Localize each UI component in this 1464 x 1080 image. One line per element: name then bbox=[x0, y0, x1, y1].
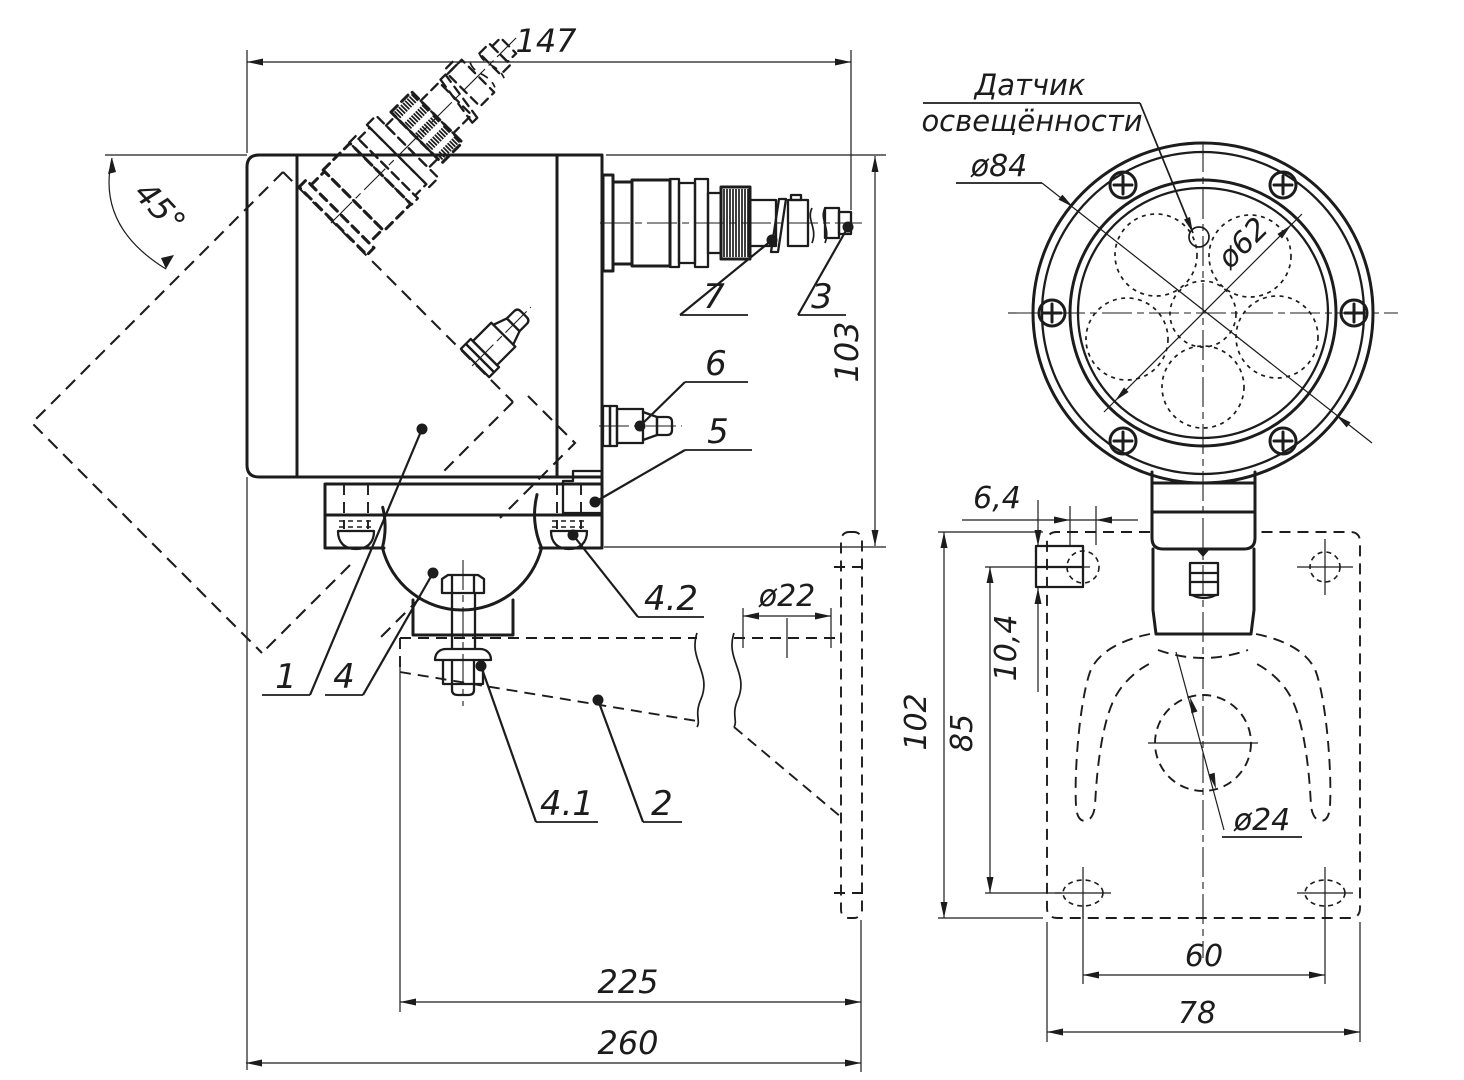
callout-text-7: 7 bbox=[703, 277, 725, 317]
callout-4-2: 4.2 bbox=[568, 530, 705, 620]
dim-text-103: 103 bbox=[828, 321, 866, 382]
callout-text-1: 1 bbox=[275, 657, 297, 697]
callout-text-3: 3 bbox=[811, 277, 833, 317]
dim-text-10-4: 10,4 bbox=[989, 615, 1024, 682]
dim-text-260: 260 bbox=[597, 1024, 658, 1062]
dim-147: 147 bbox=[247, 22, 851, 1070]
callout-text-4: 4 bbox=[333, 657, 355, 697]
callout-text-5: 5 bbox=[707, 412, 729, 452]
dim-text-78: 78 bbox=[1178, 996, 1216, 1031]
ghost-rotated-housing bbox=[32, 4, 575, 653]
dim-10-4: 10,4 bbox=[989, 500, 1042, 692]
dim-text-147: 147 bbox=[515, 22, 577, 60]
dim-text-o22: ø22 bbox=[758, 579, 816, 614]
callout-text-4-2: 4.2 bbox=[644, 579, 698, 619]
callout-text-2: 2 bbox=[651, 784, 673, 824]
dim-text-o84: ø84 bbox=[970, 149, 1028, 184]
dim-text-85: 85 bbox=[945, 714, 980, 752]
rotated-valve bbox=[458, 293, 545, 380]
dim-o24: ø24 bbox=[1176, 652, 1302, 838]
sensor-label-line2: освещённости bbox=[921, 104, 1142, 138]
callout-text-6: 6 bbox=[705, 344, 727, 384]
sensor-label-line1: Датчик bbox=[973, 68, 1086, 102]
dim-text-45: 45° bbox=[127, 174, 193, 241]
dim-o22: ø22 bbox=[743, 579, 831, 658]
lamp-housing-body bbox=[247, 155, 602, 513]
mounting-plate-dashed bbox=[1036, 532, 1360, 919]
dim-225: 225 bbox=[400, 660, 861, 1072]
callout-4-1: 4.1 bbox=[476, 661, 599, 825]
dim-text-225: 225 bbox=[597, 963, 658, 1001]
dim-text-102: 102 bbox=[899, 693, 934, 750]
callout-1: 1 bbox=[262, 424, 428, 698]
dim-260: 260 bbox=[246, 1024, 861, 1067]
technical-drawing-canvas: 147 103 45° ø22 225 260 1 4 4.1 2 4.2 5 … bbox=[0, 0, 1464, 1080]
callout-2: 2 bbox=[593, 695, 683, 825]
dim-60: 60 bbox=[1083, 905, 1325, 984]
stem-clamp-screw bbox=[1190, 563, 1218, 598]
clamp-bracket bbox=[325, 477, 602, 549]
dim-text-60: 60 bbox=[1185, 939, 1223, 974]
dim-text-o62: ø62 bbox=[1210, 211, 1275, 276]
dim-6-4: 6,4 bbox=[962, 481, 1138, 545]
callout-6: 6 bbox=[635, 344, 749, 432]
plate-hole-top-right bbox=[1297, 539, 1353, 595]
ghost-connector bbox=[297, 4, 550, 257]
drawing-page: 147 103 45° ø22 225 260 1 4 4.1 2 4.2 5 … bbox=[0, 0, 1464, 1080]
callout-4: 4 bbox=[325, 568, 439, 698]
dim-text-o24: ø24 bbox=[1233, 803, 1291, 838]
cable-connector bbox=[600, 175, 862, 271]
callout-text-4-1: 4.1 bbox=[540, 784, 594, 824]
dim-45deg: 45° bbox=[105, 155, 247, 269]
dim-text-6-4: 6,4 bbox=[973, 481, 1021, 516]
